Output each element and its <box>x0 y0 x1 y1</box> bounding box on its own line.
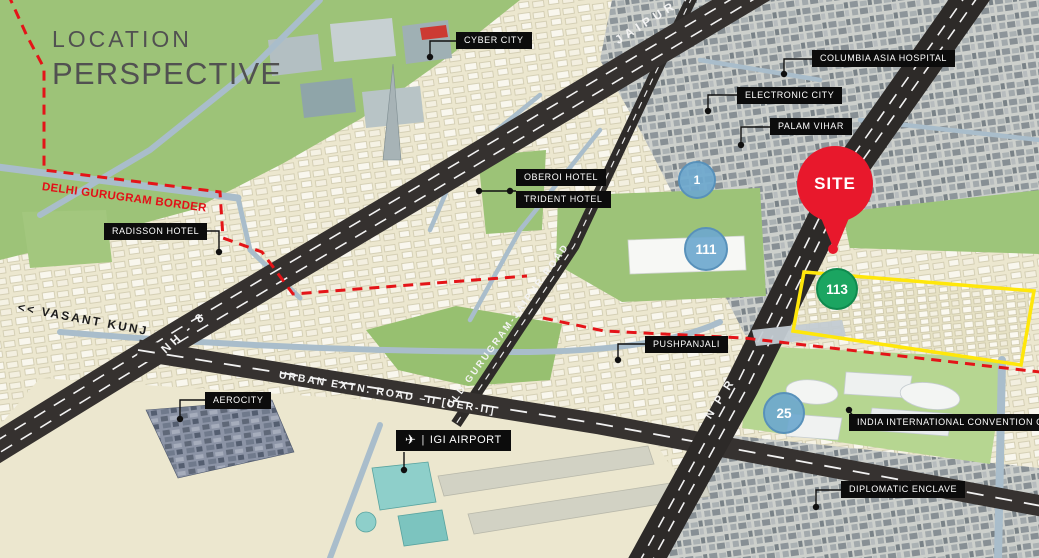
title-line-2: PERSPECTIVE <box>52 56 282 92</box>
label-columbia-asia-hospital: COLUMBIA ASIA HOSPITAL <box>812 50 955 67</box>
site-marker-label: SITE <box>814 174 856 194</box>
sector-marker-25: 25 <box>763 392 805 434</box>
label-igi-airport: ✈ | IGI AIRPORT <box>396 430 511 451</box>
sector-marker-1: 1 <box>678 161 716 199</box>
title-line-1: LOCATION <box>52 26 282 53</box>
label-separator: | <box>421 435 424 446</box>
label-trident-hotel: TRIDENT HOTEL <box>516 191 611 208</box>
map-canvas: LOCATION PERSPECTIVE DELHI GURUGRAM BORD… <box>0 0 1039 558</box>
airplane-icon: ✈ <box>405 435 416 445</box>
label-palam-vihar: PALAM VIHAR <box>770 118 852 135</box>
label-aerocity: AEROCITY <box>205 392 271 409</box>
sector-marker-111: 111 <box>684 227 728 271</box>
label-diplomatic-enclave: DIPLOMATIC ENCLAVE <box>841 481 965 498</box>
site-marker-bubble: SITE <box>797 146 873 222</box>
site-marker-tip <box>828 244 838 254</box>
label-convention-centre: INDIA INTERNATIONAL CONVENTION CENTRE <box>849 414 1039 431</box>
label-radisson-hotel: RADISSON HOTEL <box>104 223 207 240</box>
label-pushpanjali: PUSHPANJALI <box>645 336 728 353</box>
label-cyber-city: CYBER CITY <box>456 32 532 49</box>
page-title: LOCATION PERSPECTIVE <box>52 26 282 92</box>
label-oberoi-hotel: OBEROI HOTEL <box>516 169 606 186</box>
sector-marker-113: 113 <box>816 268 858 310</box>
label-electronic-city: ELECTRONIC CITY <box>737 87 842 104</box>
igi-airport-text: IGI AIRPORT <box>430 435 502 446</box>
